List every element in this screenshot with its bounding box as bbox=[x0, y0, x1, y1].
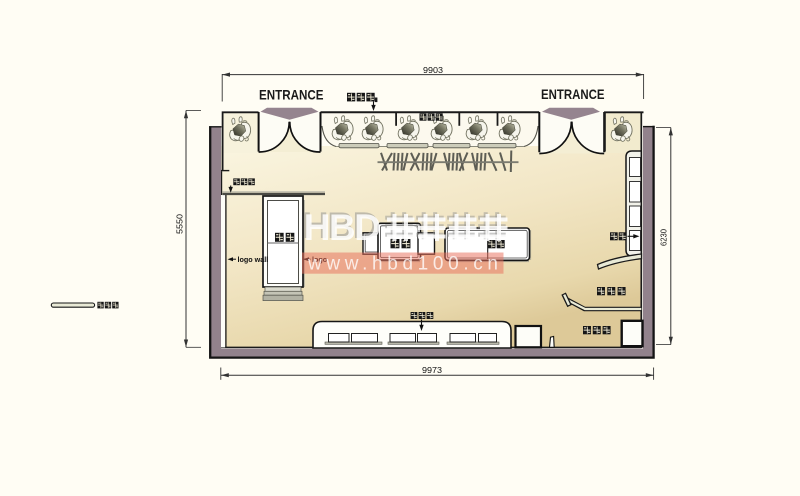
svg-text:5550: 5550 bbox=[176, 214, 185, 234]
svg-text:9903: 9903 bbox=[423, 66, 443, 75]
svg-text:ENTRANCE: ENTRANCE bbox=[541, 86, 605, 102]
svg-text:ENTRANCE: ENTRANCE bbox=[259, 87, 324, 103]
svg-text:9973: 9973 bbox=[422, 366, 442, 375]
svg-text:6230: 6230 bbox=[660, 229, 669, 246]
svg-text:HBD: HBD bbox=[304, 207, 380, 248]
svg-text:logo wall: logo wall bbox=[238, 255, 269, 264]
